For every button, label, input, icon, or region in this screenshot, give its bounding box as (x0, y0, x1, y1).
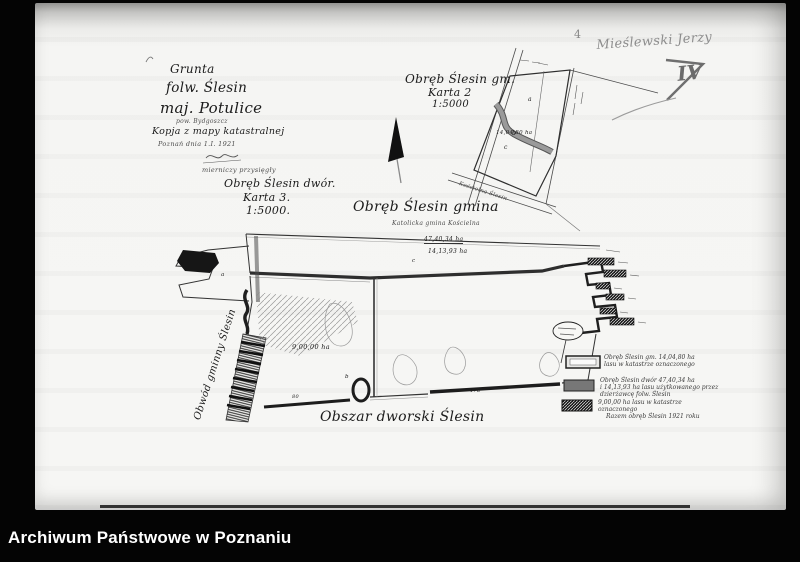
inset-karta: Karta 2 (428, 86, 472, 99)
legend-row2-line2: i 14,13,93 ha lasu użytkowanego przez (600, 384, 718, 391)
title-line-grunta: Grunta (170, 62, 215, 76)
title-line-kopja: Kopja z mapy katastralnej (152, 126, 284, 137)
legend-row1-line1: Obręb Ślesin gm. 14,04,80 ha (604, 354, 695, 361)
boundary-number-17a: 17a (470, 388, 480, 394)
label-obreb-gmina: Obręb Ślesin gmina (353, 199, 499, 215)
title-line-surveyor: mierniczy przysięgły (202, 166, 276, 174)
title-line-obreb-dwor: Obręb Ślesin dwór. (224, 177, 336, 190)
label-obszar-dworski: Obszar dworski Ślesin (320, 409, 484, 425)
archive-watermark: Archiwum Państwowe w Poznaniu (8, 528, 292, 548)
legend-row2-line1: Obręb Ślesin dwór 47,40,34 ha (600, 377, 695, 384)
title-line-majatek: maj. Potulice (160, 99, 262, 117)
north-arrow-icon (388, 117, 404, 183)
pencil-roman-numeral: IV (676, 59, 704, 86)
pencil-number: 4 (574, 28, 581, 41)
archive-scan-viewer: Grunta folw. Ślesin maj. Potulice pow. B… (0, 0, 800, 562)
inset-title: Obręb Ślesin gm. (405, 72, 515, 86)
legend-row3-line2: oznaczonego (598, 406, 637, 413)
title-line-powiat: pow. Bydgoszcz (176, 118, 228, 125)
legend-swatches (562, 356, 600, 411)
inset-parcel-a: a (528, 96, 532, 103)
legend-row2-line3: dzierżawcę folw. Ślesin (600, 391, 670, 398)
parcel-letter-a: a (221, 272, 225, 278)
legend-row3-line3: Razem obręb Ślesin 1921 roku (606, 413, 700, 420)
area-value-2: 14,13,93 ha (428, 248, 467, 255)
film-edge-streak (100, 505, 690, 508)
title-line-scale: 1:5000. (246, 204, 290, 217)
area-value-3: 9,00,00 ha (292, 343, 330, 351)
title-line-folwark: folw. Ślesin (166, 80, 247, 96)
legend-row3-line1: 9,00,00 ha lasu w katastrze (598, 399, 682, 406)
parcel-letter-c: c (412, 258, 415, 264)
inset-parcel-b: b (512, 130, 516, 137)
parcel-letter-b: b (345, 374, 349, 380)
title-line-date: Poznań dnia 1.I. 1921 (158, 140, 236, 148)
main-map-drawing (176, 204, 646, 422)
legend-row1-line2: lasu w katastrze oznaczonego (604, 361, 695, 368)
signature-scribble (203, 155, 241, 163)
title-line-karta3: Karta 3. (243, 191, 290, 204)
label-koscielna: Katolicka gmina Kościelna (392, 220, 480, 227)
inset-parcel-c: c (504, 144, 508, 151)
area-value-1: 47,40,34 ha (424, 236, 463, 244)
inset-scale: 1:5000 (432, 99, 469, 110)
small-mark (146, 57, 153, 62)
boundary-number-80: 80 (292, 394, 299, 400)
